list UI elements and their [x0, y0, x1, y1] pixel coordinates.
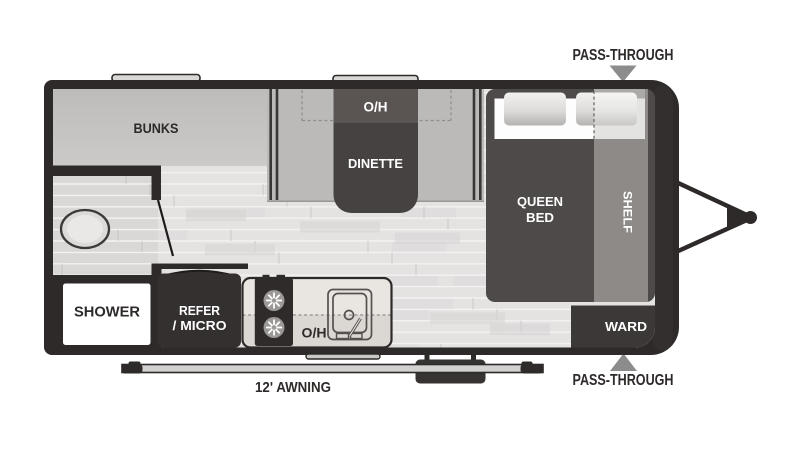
svg-text:WARD: WARD	[605, 319, 647, 334]
svg-text:QUEEN: QUEEN	[517, 194, 563, 209]
svg-text:SHELF: SHELF	[621, 191, 635, 233]
svg-text:PASS-THROUGH: PASS-THROUGH	[573, 372, 674, 389]
svg-text:O/H: O/H	[302, 325, 327, 341]
svg-text:DINETTE: DINETTE	[348, 156, 403, 171]
svg-text:BED: BED	[526, 210, 554, 225]
svg-text:12' AWNING: 12' AWNING	[255, 379, 331, 396]
svg-text:SHOWER: SHOWER	[74, 305, 141, 321]
svg-text:O/H: O/H	[364, 100, 388, 115]
svg-text:PASS-THROUGH: PASS-THROUGH	[573, 47, 674, 64]
svg-text:BUNKS: BUNKS	[134, 120, 179, 136]
svg-text:REFER: REFER	[179, 303, 221, 318]
svg-text:/ MICRO: / MICRO	[173, 318, 227, 333]
